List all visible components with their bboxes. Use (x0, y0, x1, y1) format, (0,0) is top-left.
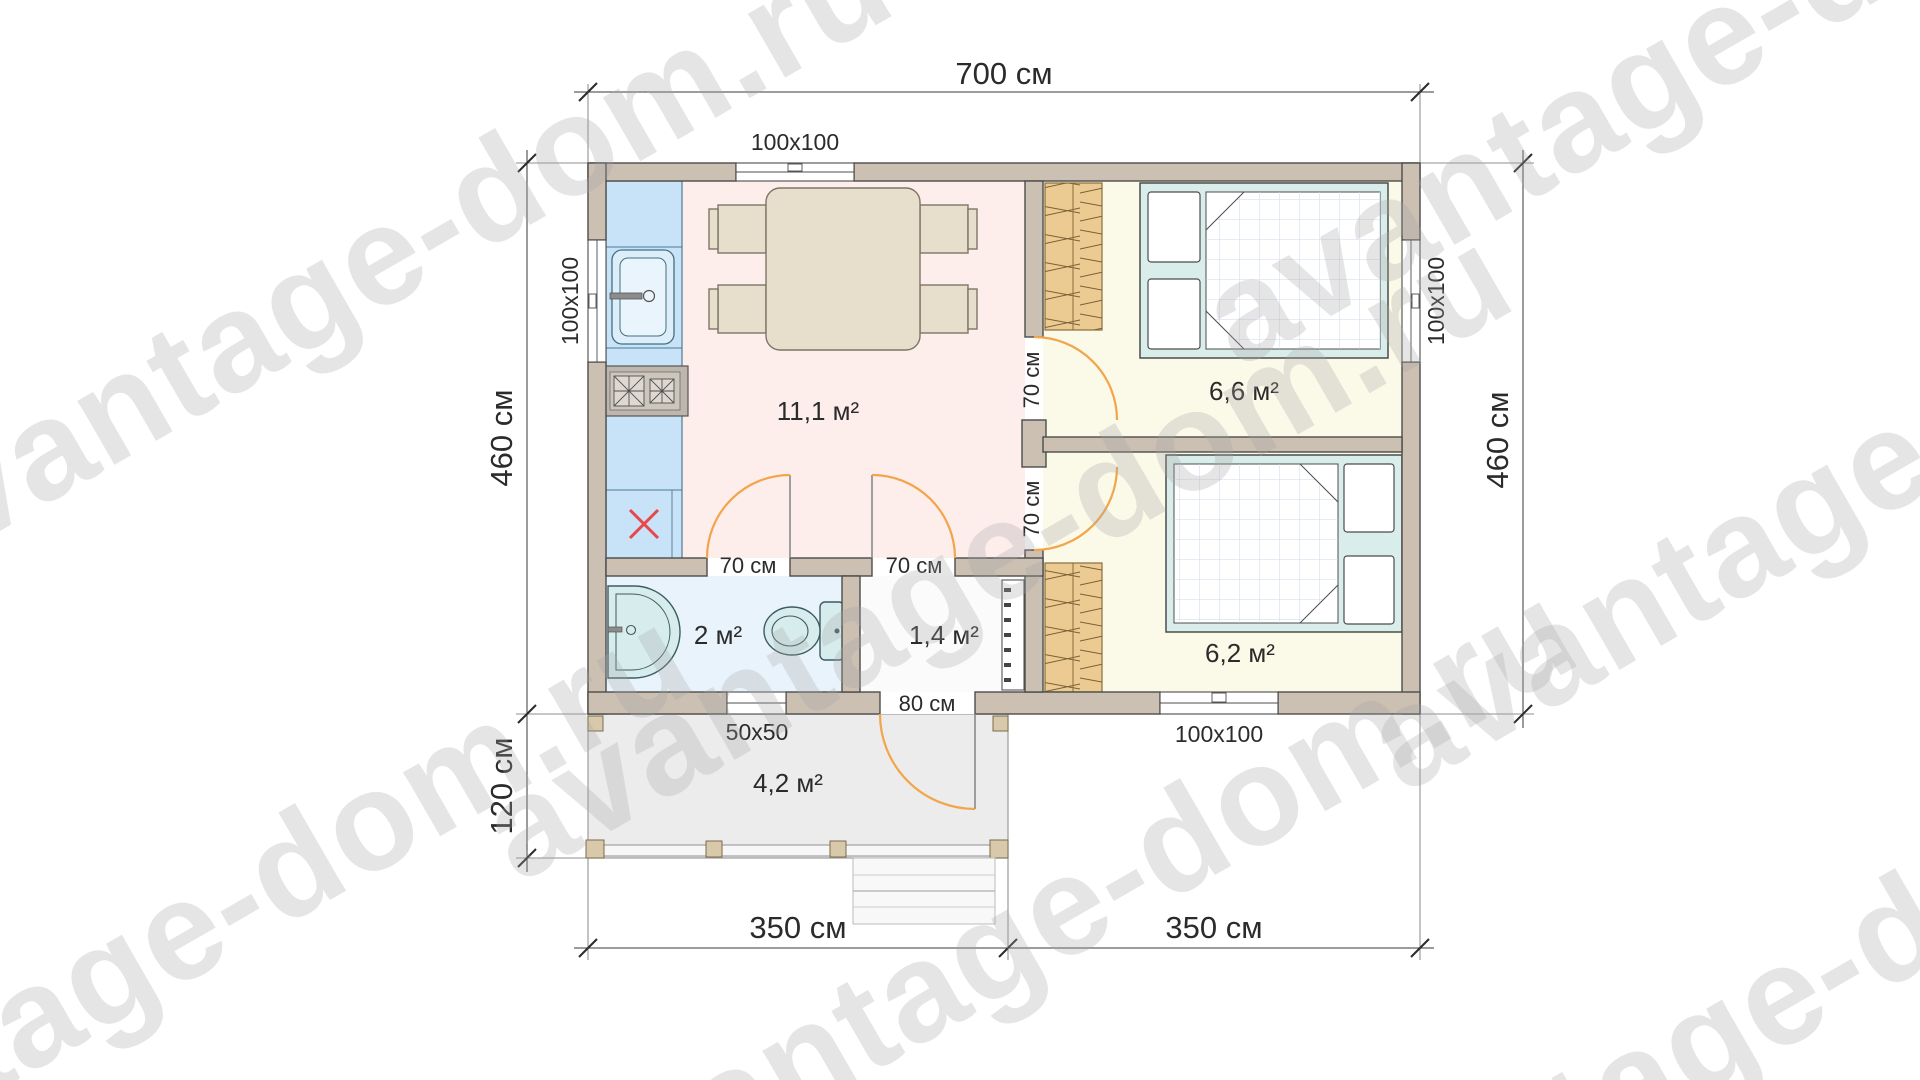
chair (920, 285, 977, 333)
floor-plan-drawing: 700 см 460 см 460 см 120 см 350 см 350 с… (0, 0, 1920, 1080)
wall-bath-top-1 (606, 558, 707, 576)
kitchen-sink (610, 250, 674, 344)
floor-plan-canvas: 700 см 460 см 460 см 120 см 350 см 350 с… (0, 0, 1920, 1080)
window-left-label: 100x100 (557, 257, 583, 345)
burner-right (650, 379, 674, 403)
wardrobe-bedroom1 (1045, 183, 1102, 330)
stove (602, 366, 688, 416)
chair (709, 285, 766, 333)
wall-corridor-upper (1025, 181, 1043, 337)
door-bathroom-label: 70 см (720, 553, 777, 578)
chair (709, 205, 766, 253)
pillow (1344, 556, 1394, 624)
chair (920, 205, 977, 253)
window-top-label: 100x100 (751, 129, 839, 155)
pillow (1344, 464, 1394, 532)
dining-table (766, 188, 920, 350)
watermarks: avantage-dom.ru avantage-dom.ru avantage… (0, 0, 1920, 1080)
dim-width-total: 700 см (955, 56, 1052, 91)
window-left (588, 240, 606, 362)
porch-rail (590, 845, 1006, 856)
wall-bottom-3 (975, 692, 1160, 714)
dim-bottom-left: 350 см (749, 910, 846, 945)
burner-left (614, 376, 644, 406)
dim-height-right: 460 см (1480, 391, 1515, 488)
living-kitchen-area-label: 11,1 м² (777, 396, 860, 426)
faucet (610, 293, 642, 299)
bedroom2-area-label: 6,2 м² (1205, 638, 1275, 668)
dim-height-left: 460 см (484, 389, 519, 486)
door-bedroom1-label: 70 см (1019, 352, 1044, 409)
window-top (736, 163, 854, 181)
